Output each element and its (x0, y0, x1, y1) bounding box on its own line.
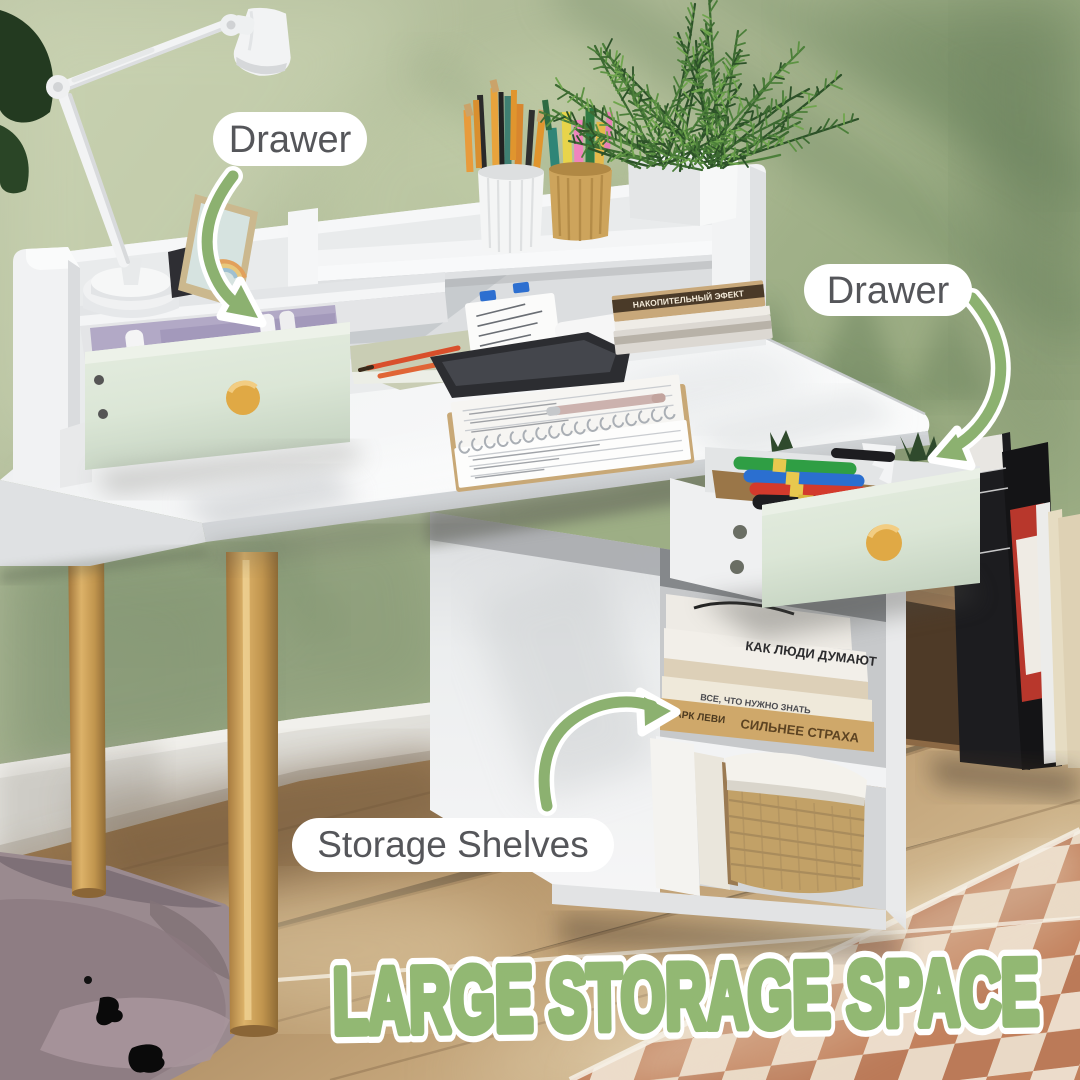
svg-text:Drawer: Drawer (827, 270, 950, 312)
svg-text:Drawer: Drawer (229, 119, 352, 161)
svg-text:Storage Shelves: Storage Shelves (317, 824, 589, 865)
svg-text:LARGE STORAGE SPACE: LARGE STORAGE SPACE (332, 941, 1039, 1053)
